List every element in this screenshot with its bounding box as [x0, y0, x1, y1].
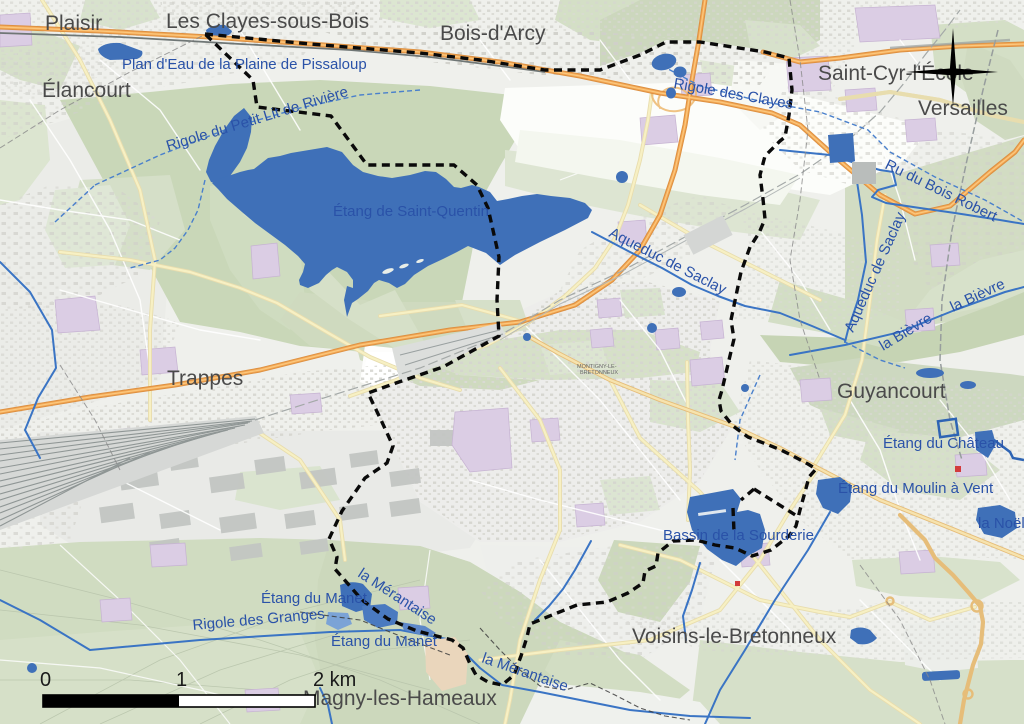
svg-text:Bassin de la Sourderie: Bassin de la Sourderie	[663, 527, 814, 544]
svg-text:Étang du Manet: Étang du Manet	[331, 633, 438, 650]
svg-text:2 km: 2 km	[313, 669, 356, 691]
svg-text:0: 0	[40, 669, 51, 691]
svg-text:Étang de Saint-Quentin: Étang de Saint-Quentin	[333, 203, 489, 220]
svg-text:Bois-d'Arcy: Bois-d'Arcy	[440, 22, 546, 45]
svg-text:Étang du Moulin à Vent: Étang du Moulin à Vent	[838, 480, 994, 497]
svg-text:1: 1	[176, 669, 187, 691]
svg-text:Élancourt: Élancourt	[42, 79, 131, 102]
svg-text:Étang du Manet: Étang du Manet	[261, 590, 368, 607]
svg-text:BRETONNEUX: BRETONNEUX	[580, 370, 618, 376]
svg-text:Plaisir: Plaisir	[45, 12, 102, 35]
svg-text:Voisins-le-Bretonneux: Voisins-le-Bretonneux	[632, 625, 837, 648]
svg-text:Plan d'Eau de la Plaine de Pis: Plan d'Eau de la Plaine de Pissaloup	[122, 56, 367, 73]
svg-text:Trappes: Trappes	[167, 367, 243, 390]
svg-text:Étang du Château: Étang du Château	[883, 435, 1004, 452]
svg-text:la Noël: la Noël	[978, 515, 1024, 532]
svg-text:Guyancourt: Guyancourt	[837, 380, 946, 403]
svg-text:Versailles: Versailles	[918, 97, 1008, 120]
svg-text:Les Clayes-sous-Bois: Les Clayes-sous-Bois	[166, 10, 369, 33]
